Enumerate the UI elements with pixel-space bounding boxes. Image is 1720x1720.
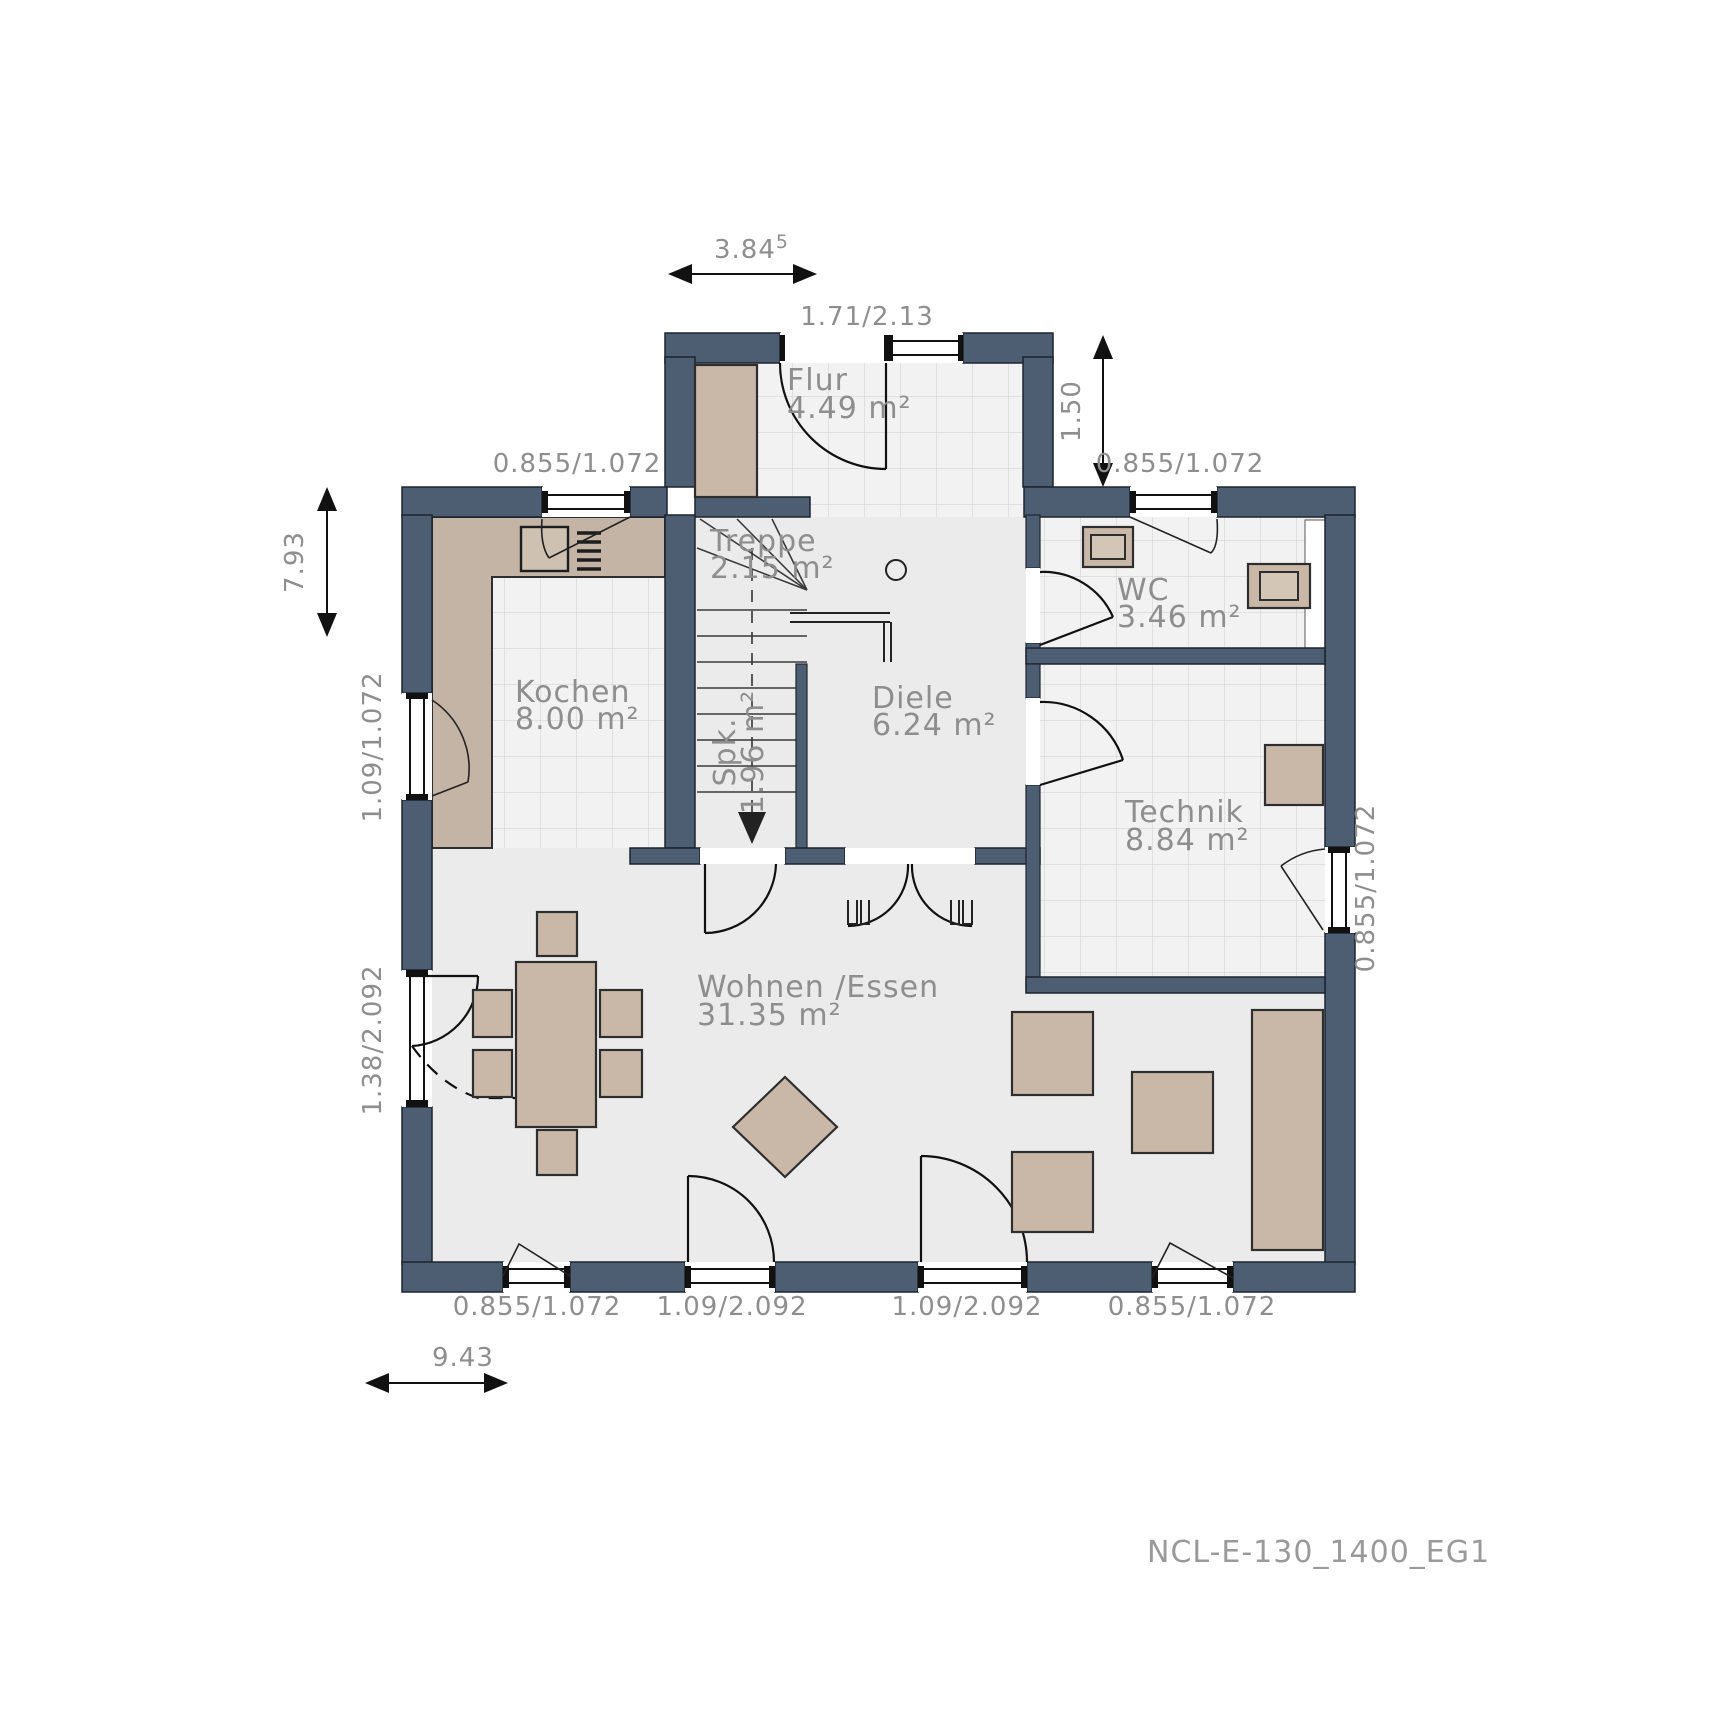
wall-technik-left-b	[1026, 785, 1040, 990]
dim-bottom-width: 9.43	[369, 1343, 504, 1383]
armchair-1	[1012, 1012, 1093, 1095]
dim-terrace-door-1: 1.09/2.092	[656, 1292, 807, 1322]
dim-left-height: 7.93	[280, 491, 327, 633]
svg-text:9.43: 9.43	[432, 1343, 494, 1373]
wall-top-left-b	[630, 487, 667, 517]
room-label-kochen: Kochen8.00 m²	[515, 675, 640, 737]
wall-bottom-b	[570, 1262, 685, 1292]
wall-top-right-b	[1217, 487, 1355, 517]
wall-top-left-a	[402, 487, 542, 517]
floor-plan-drawing: Flur4.49 m² Treppe2.15 m² WC3.46 m² Koch…	[0, 0, 1720, 1720]
wc-toilet-seat	[1260, 572, 1298, 600]
dim-terrace-door-2: 1.09/2.092	[891, 1292, 1042, 1322]
dim-entry-door: 1.71/2.13	[800, 302, 934, 332]
wall-left-b	[402, 800, 432, 970]
room-label-technik: Technik8.84 m²	[1124, 795, 1250, 858]
dim-window-top-left: 0.855/1.072	[493, 449, 662, 479]
wall-wc-left	[1026, 515, 1040, 568]
wall-bottom-e	[1233, 1262, 1355, 1292]
wall-technik-bottom	[1026, 977, 1325, 993]
room-label-treppe: Treppe2.15 m²	[709, 524, 835, 586]
wall-wohnen-b	[785, 848, 845, 864]
dim-window-kitchen: 1.09/1.072	[358, 671, 388, 822]
dining-chair-top	[537, 912, 577, 956]
wall-technik-left-a	[1026, 664, 1040, 698]
dim-window-bottom-left: 0.855/1.072	[453, 1292, 622, 1322]
svg-text:1.50: 1.50	[1057, 380, 1087, 442]
flur-wardrobe	[695, 365, 757, 497]
dining-chair-left-2	[473, 1050, 512, 1097]
wall-wohnen-a	[630, 848, 700, 864]
dining-chair-bottom	[537, 1130, 577, 1175]
wall-bottom-c	[775, 1262, 918, 1292]
wall-wc-bottom	[1026, 648, 1325, 664]
dining-chair-right-2	[600, 1050, 642, 1097]
svg-text:7.93: 7.93	[280, 531, 310, 593]
wall-kitchen-stair	[665, 515, 695, 848]
floor-plan-page: Flur4.49 m² Treppe2.15 m² WC3.46 m² Koch…	[0, 0, 1720, 1720]
wall-right-a	[1325, 515, 1355, 847]
dim-window-bottom-right: 0.855/1.072	[1108, 1292, 1277, 1322]
dining-chair-left-1	[473, 990, 512, 1037]
dim-side-entry: 1.38/2.092	[358, 964, 388, 1115]
wall-proj-right	[1023, 357, 1053, 487]
svg-text:3.845: 3.845	[714, 231, 789, 265]
wall-left-c	[402, 1107, 432, 1264]
technik-unit	[1265, 745, 1323, 805]
wall-spk-diele	[796, 664, 807, 848]
wall-left-a	[402, 515, 432, 693]
dining-table	[516, 962, 596, 1127]
side-table	[1132, 1072, 1213, 1153]
dim-window-top-right: 0.855/1.072	[1096, 449, 1265, 479]
armchair-2	[1012, 1152, 1093, 1232]
dim-window-technik: 0.855/1.072	[1351, 804, 1381, 973]
wall-top-right-a	[1024, 487, 1130, 517]
wc-sink-basin	[1091, 535, 1125, 559]
wall-proj-left	[665, 357, 695, 487]
dim-top-width: 3.845	[672, 231, 813, 274]
wall-bottom-a	[402, 1262, 503, 1292]
wall-bottom-d	[1027, 1262, 1152, 1292]
drawing-code: NCL-E-130_1400_EG1	[1147, 1535, 1490, 1570]
sofa	[1252, 1010, 1323, 1250]
dining-chair-right-1	[600, 990, 642, 1037]
wall-right-b	[1325, 933, 1355, 1264]
wall-flur-stair	[695, 497, 810, 517]
